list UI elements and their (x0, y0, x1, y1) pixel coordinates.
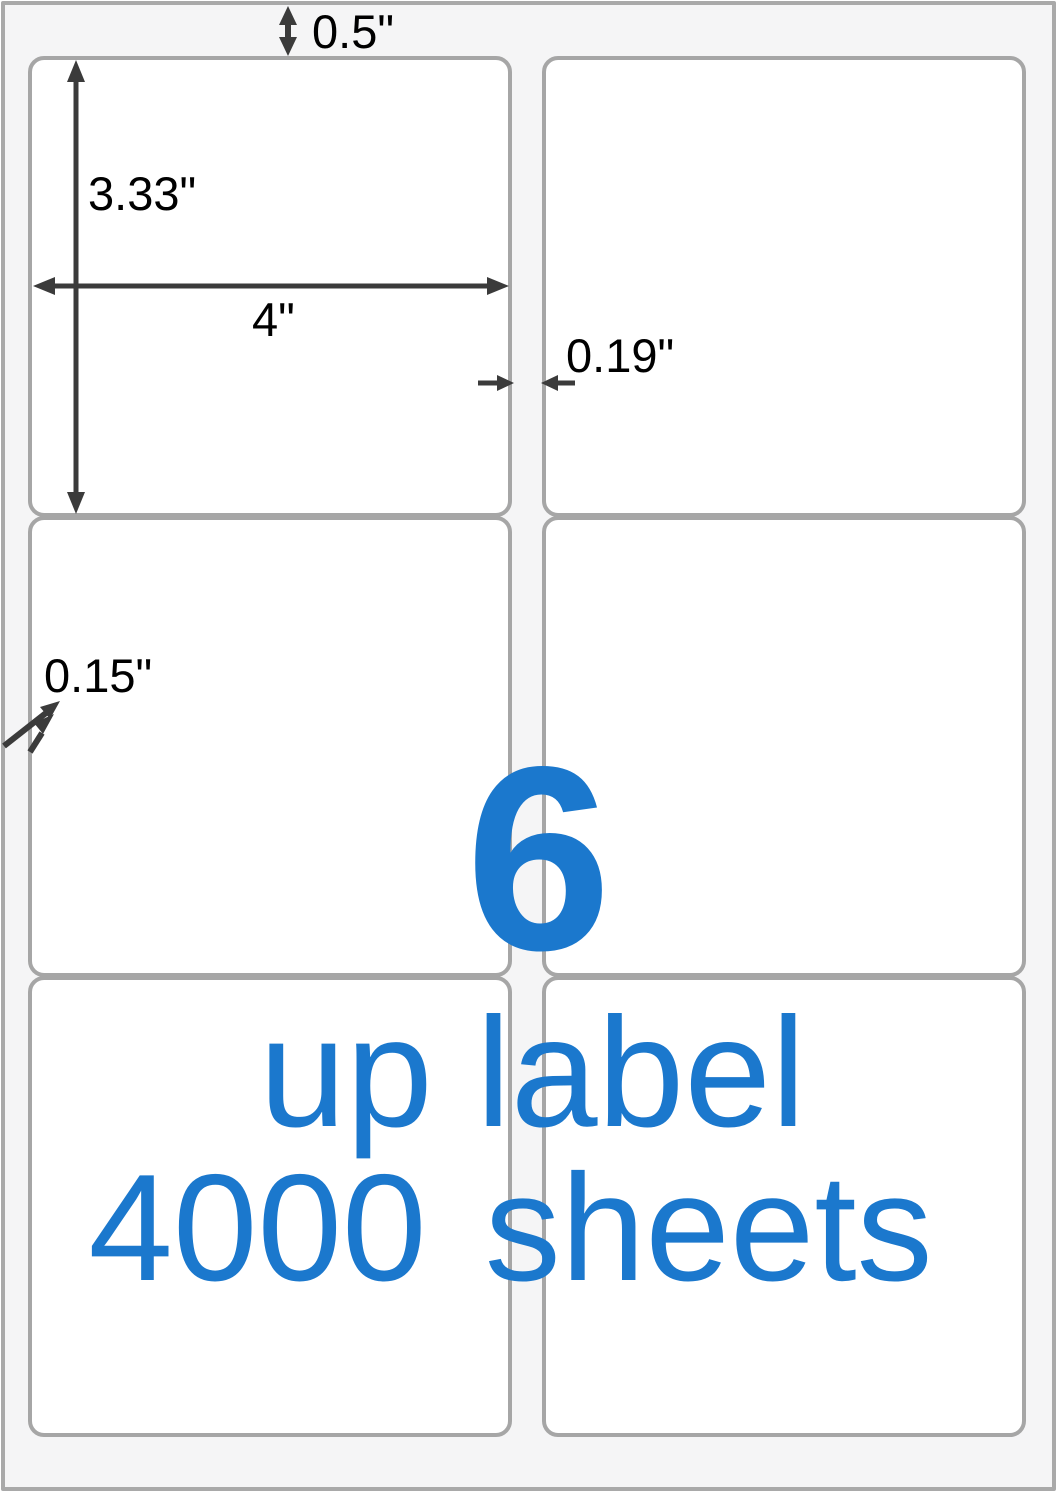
headline-sheet-count: 4000 sheets (0, 1152, 1039, 1304)
label-cell-2 (542, 56, 1026, 517)
side-margin-dimension: 0.15" (44, 652, 152, 699)
label-height-dimension: 3.33" (88, 170, 196, 217)
label-width-dimension: 4" (252, 296, 295, 343)
label-count-headline: 6 (10, 728, 1057, 990)
column-gap-dimension: 0.19" (566, 332, 674, 379)
label-cell-1 (28, 56, 512, 517)
product-image: 0.5" 3.33" 4" 0.19" 0.15" 6 up label 400… (0, 0, 1057, 1492)
top-margin-dimension: 0.5" (312, 8, 394, 55)
headline-up-label: up label (4, 995, 1057, 1151)
